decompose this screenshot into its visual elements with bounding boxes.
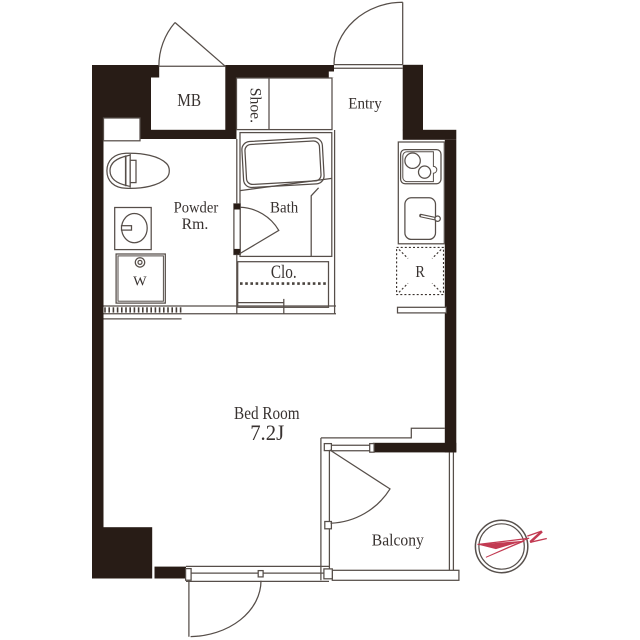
- svg-text:W: W: [133, 274, 147, 289]
- svg-text:R: R: [415, 262, 425, 281]
- svg-text:Bath: Bath: [270, 199, 298, 216]
- svg-text:Balcony: Balcony: [372, 531, 425, 550]
- svg-text:Rm.: Rm.: [182, 216, 209, 233]
- svg-text:Shoe.: Shoe.: [247, 88, 264, 123]
- svg-text:Powder: Powder: [174, 199, 219, 216]
- svg-text:Clo.: Clo.: [271, 262, 297, 283]
- svg-text:7.2J: 7.2J: [250, 420, 284, 445]
- svg-text:MB: MB: [177, 90, 201, 110]
- svg-text:Entry: Entry: [348, 95, 382, 113]
